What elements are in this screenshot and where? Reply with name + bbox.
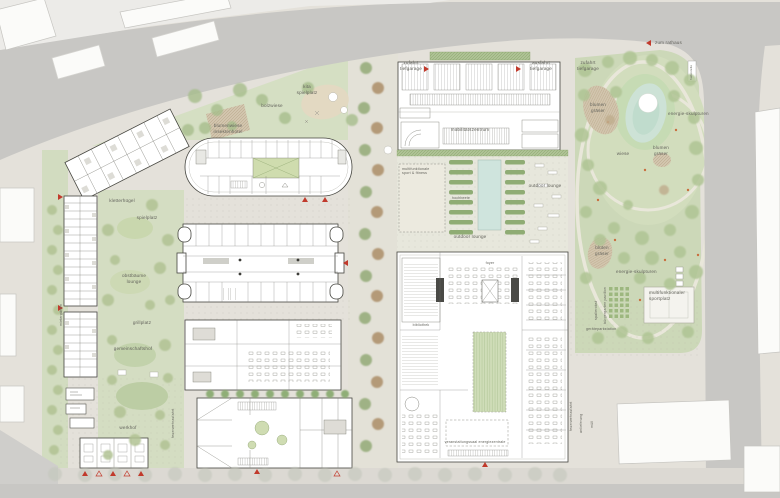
context-building-se: [617, 400, 731, 464]
flower-patch-2: [653, 153, 671, 167]
building-bar-3: [185, 320, 341, 390]
building-bar-2: [177, 224, 344, 302]
building-complex: [397, 252, 568, 462]
round-sculpture: [639, 94, 658, 113]
trampoline-3: [384, 146, 392, 154]
trampoline-2: [341, 107, 348, 114]
building-garage: [398, 52, 560, 150]
site-plan-graphic: [0, 0, 780, 498]
trampoline-1: [329, 93, 338, 102]
water-basin: [478, 160, 501, 230]
context-building-corner: [744, 446, 780, 492]
bottom-road: [0, 484, 780, 498]
context-building-west3: [0, 386, 24, 422]
park-pavilions: [676, 267, 683, 286]
context-building-west1: [0, 188, 34, 242]
site-plan: zum rathaus kita spielplatz bolzwiese bl…: [0, 0, 780, 498]
context-building-west2: [0, 294, 16, 356]
building-oval: [185, 138, 352, 196]
building-rowhouse-strip: [64, 196, 97, 377]
context-building-east: [755, 108, 780, 354]
sport-fitness-field: [399, 164, 445, 232]
building-bar-4: [197, 398, 352, 468]
